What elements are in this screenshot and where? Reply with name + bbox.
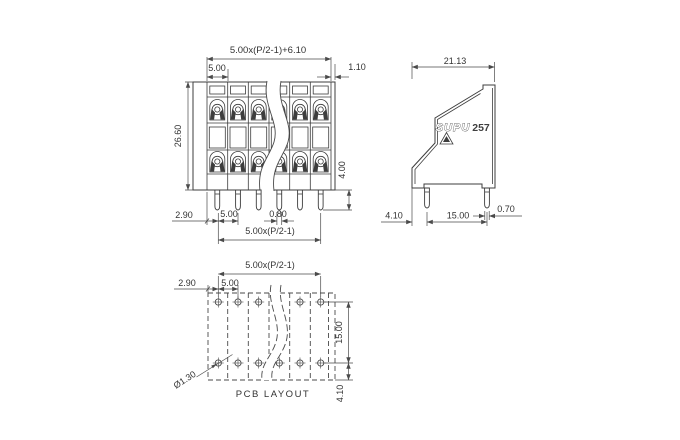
pcb-dim-hole-pitch: 5.00 bbox=[218, 278, 238, 299]
front-dim-pitch-top: 5.00 bbox=[207, 63, 228, 81]
dim-pin-pitch-label: 5.00 bbox=[220, 209, 238, 219]
dim-pitch-top-label: 5.00 bbox=[208, 63, 226, 73]
pcb-layout-view: 5.00x(P/2-1) 2.90 5.00 15.00 4.10 Ø1.30 bbox=[172, 260, 353, 402]
pcb-layout-caption: PCB LAYOUT bbox=[236, 389, 310, 400]
dim-corner-margin-label: 1.10 bbox=[348, 62, 366, 72]
side-dim-pin-width: 0.70 bbox=[473, 204, 522, 220]
dim-overall-width-label: 5.00x(P/2-1)+6.10 bbox=[230, 45, 306, 56]
front-dim-corner-margin: 1.10 bbox=[317, 62, 366, 80]
dim-hole-span-label: 5.00x(P/2-1) bbox=[245, 260, 295, 270]
pcb-dim-bottom-offset: 4.10 bbox=[335, 363, 353, 402]
dim-side-pin-width-label: 0.70 bbox=[497, 204, 515, 214]
dim-edge-to-pin-label: 2.90 bbox=[175, 210, 193, 220]
dim-pcb-row-pitch-label: 15.00 bbox=[334, 321, 344, 344]
pcb-break-band bbox=[262, 285, 288, 380]
dim-pin-width-label: 0.80 bbox=[269, 209, 287, 219]
dim-pin-span-label: 5.00x(P/2-1) bbox=[245, 226, 295, 236]
dim-body-height-label: 26.60 bbox=[173, 125, 183, 148]
side-dim-body-depth: 21.13 bbox=[412, 56, 495, 82]
side-body-outline bbox=[412, 85, 495, 188]
dim-pin-length-label: 4.00 bbox=[337, 161, 347, 179]
series-number: 257 bbox=[472, 122, 490, 134]
pcb-dim-edge-to-hole: 2.90 bbox=[174, 278, 218, 293]
dim-bottom-offset-label: 4.10 bbox=[335, 385, 345, 403]
terminal-block-technical-drawing: 5.00x(P/2-1)+6.10 5.00 1.10 26.60 4.00 bbox=[0, 0, 680, 440]
front-view: 5.00x(P/2-1)+6.10 5.00 1.10 26.60 4.00 bbox=[172, 45, 366, 244]
side-dim-row-pitch: 15.00 bbox=[427, 211, 487, 227]
dim-body-depth-label: 21.13 bbox=[444, 56, 467, 66]
side-body-inner-wall bbox=[415, 88, 493, 184]
dim-pin-offset-label: 4.10 bbox=[385, 211, 403, 221]
dim-hole-diameter-label: Ø1.30 bbox=[172, 369, 198, 391]
front-dim-body-height: 26.60 bbox=[173, 82, 193, 190]
dim-edge-to-hole-label: 2.90 bbox=[178, 278, 196, 288]
front-dim-pin-width: 0.80 bbox=[264, 209, 294, 225]
front-dim-pin-pitch: 5.00 bbox=[218, 209, 238, 225]
side-view: SUPU 257 21.13 4.10 15.00 0.70 bbox=[381, 56, 522, 226]
brand-logo-text: SUPU bbox=[436, 122, 471, 134]
pcb-dim-hole-diameter: Ø1.30 bbox=[172, 355, 233, 391]
dim-row-pitch-label: 15.00 bbox=[447, 211, 470, 221]
drawing-canvas: 5.00x(P/2-1)+6.10 5.00 1.10 26.60 4.00 bbox=[0, 0, 680, 440]
front-dim-edge-to-pin: 2.90 bbox=[172, 192, 218, 225]
dim-hole-pitch-label: 5.00 bbox=[221, 278, 239, 288]
side-dim-pin-offset: 4.10 bbox=[381, 188, 427, 226]
